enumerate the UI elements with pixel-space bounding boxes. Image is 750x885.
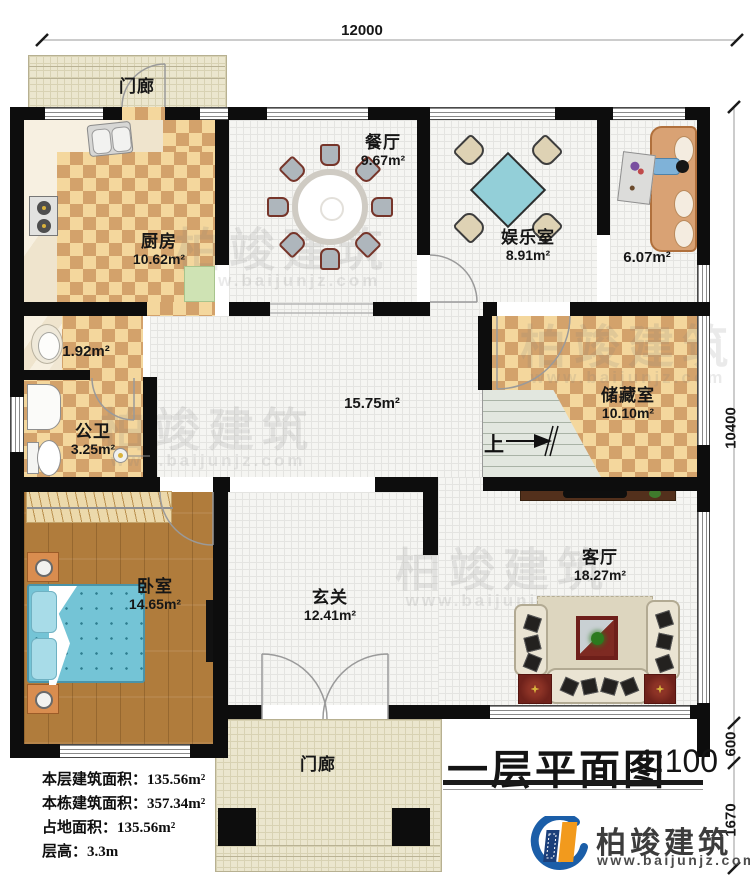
corner-rug — [518, 674, 552, 704]
company-website: www.baijunjz.com — [597, 852, 750, 868]
info-row: 本栋建筑面积：357.34m² — [42, 792, 205, 816]
dining-table-center — [320, 197, 344, 221]
room-area: 18.27m² — [574, 567, 626, 583]
lounge-sofa — [650, 126, 697, 252]
sofa-pillow — [523, 653, 543, 673]
room-area: 3.25m² — [71, 441, 115, 457]
dimension-right-offset: 600 — [723, 731, 740, 756]
room-name: 餐厅 — [361, 134, 405, 152]
room-area: 12.41m² — [304, 607, 356, 623]
plan-title: 一层平面图 — [447, 736, 667, 796]
nightstand — [27, 552, 59, 582]
porch-bottom-step-line — [215, 856, 440, 857]
room-label-bedroom: 卧室 14.65m² — [129, 578, 181, 612]
room-area: 10.10m² — [601, 405, 655, 421]
wall-segment — [228, 705, 262, 719]
wall-segment — [555, 107, 613, 120]
room-label-store-small: 1.92m² — [62, 344, 110, 360]
room-label-storage: 储藏室 10.10m² — [601, 387, 655, 421]
info-row: 层高：3.3m — [42, 840, 205, 864]
logo-building-navy — [543, 830, 559, 862]
wall-segment — [10, 107, 24, 397]
wall-bathroom-east — [143, 377, 157, 478]
room-label-foyer: 玄关 12.41m² — [304, 589, 356, 623]
corner-rug — [644, 674, 676, 704]
wall-storage-west — [478, 316, 492, 390]
logo-building-orange — [558, 822, 577, 862]
wall-segment — [103, 107, 122, 120]
wall-dining-south — [373, 302, 430, 316]
room-area: 14.65m² — [129, 596, 181, 612]
porch-column — [392, 808, 430, 846]
room-label-lounge: 6.07m² — [623, 250, 671, 266]
room-area: 9.67m² — [361, 152, 405, 168]
flowers — [637, 168, 644, 175]
window — [45, 107, 103, 120]
info-label: 层高： — [42, 843, 87, 860]
window — [697, 512, 710, 703]
wall-segment — [388, 705, 490, 719]
nightstand — [27, 684, 59, 714]
dining-chair — [320, 144, 340, 166]
wall-storage-south — [483, 477, 710, 491]
washing-machine — [27, 384, 61, 430]
room-area: 10.62m² — [133, 251, 185, 267]
sofa-pillow — [600, 677, 619, 696]
wall-dining-east — [417, 120, 430, 255]
lounge-table — [617, 151, 656, 205]
bed — [27, 584, 145, 683]
porch-bottom-floor — [215, 719, 442, 872]
wall-segment — [697, 107, 710, 265]
wall-lounge-west — [597, 120, 610, 235]
info-value: 357.34m² — [147, 796, 205, 812]
window — [490, 705, 690, 719]
room-name: 玄关 — [304, 589, 356, 607]
room-label-dining: 餐厅 9.67m² — [361, 134, 405, 168]
sofa-pillow — [655, 610, 674, 629]
person-head — [676, 160, 689, 173]
window — [200, 107, 228, 120]
flowers — [629, 185, 635, 191]
dimension-right-height: 10400 — [723, 407, 740, 449]
kitchen-mat — [184, 266, 215, 302]
window — [613, 107, 685, 120]
room-name: 门廊 — [119, 78, 155, 96]
toilet-bowl — [37, 440, 61, 476]
window — [697, 265, 710, 445]
room-label-porch-top: 门廊 — [119, 78, 155, 96]
store-small-basin — [31, 324, 63, 364]
room-name: 储藏室 — [601, 387, 655, 405]
room-label-kitchen: 厨房 10.62m² — [133, 233, 185, 267]
room-area: 8.91m² — [501, 247, 555, 263]
sofa-right — [646, 600, 680, 680]
logo-buildings — [543, 822, 577, 862]
basin-bowl — [38, 332, 60, 360]
room-name: 厨房 — [133, 233, 185, 251]
wall-kitchen-east — [215, 120, 229, 265]
window — [10, 397, 24, 452]
sofa-pillow — [656, 633, 674, 651]
drain-dot — [118, 453, 123, 458]
dining-chair — [320, 248, 340, 270]
title-underline-thin — [443, 789, 703, 790]
porch-top-step-line — [28, 66, 225, 67]
kitchen-south-opening — [147, 302, 215, 316]
room-label-porch-bottom: 门廊 — [300, 756, 336, 774]
sofa-pillow — [560, 677, 580, 697]
room-label-bathroom: 公卫 3.25m² — [71, 423, 115, 457]
window — [267, 107, 368, 120]
sofa-bottom — [546, 668, 650, 704]
sofa-pillow — [620, 677, 640, 697]
burner-dot — [42, 206, 46, 210]
room-name: 门廊 — [300, 756, 336, 774]
wall-kitchen-south — [10, 302, 147, 316]
room-area: 15.75m² — [344, 396, 400, 412]
wall-bathroom-north — [24, 370, 90, 380]
wall-segment — [10, 744, 60, 758]
room-name: 公卫 — [71, 423, 115, 441]
wall-storage-north — [483, 302, 497, 316]
stairs-up-label: 上 — [484, 428, 504, 457]
wall-dining-south — [229, 302, 270, 316]
wall-segment — [368, 107, 430, 120]
logo-swoosh-buildings — [530, 816, 590, 874]
wardrobe-rod — [27, 507, 173, 509]
pillow-blue — [31, 591, 57, 633]
wall-segment — [165, 107, 200, 120]
info-label: 本栋建筑面积： — [42, 795, 147, 812]
room-label-hall: 15.75m² — [344, 396, 400, 412]
wall-bedroom-east — [213, 477, 228, 758]
info-value: 3.3m — [87, 844, 118, 860]
coffee-table — [576, 616, 618, 660]
kitchen-sink — [86, 121, 133, 157]
sofa-pillow — [655, 654, 674, 673]
wall-segment — [690, 705, 710, 719]
dining-chair — [267, 197, 289, 217]
dining-opening-floor — [270, 302, 373, 316]
info-row: 占地面积：135.56m² — [42, 816, 205, 840]
sofa-left — [514, 604, 548, 676]
info-label: 占地面积： — [42, 819, 117, 836]
porch-column — [218, 808, 256, 846]
table-plant — [591, 632, 604, 645]
room-area: 1.92m² — [62, 344, 110, 360]
room-label-living: 客厅 18.27m² — [574, 549, 626, 583]
room-name: 卧室 — [129, 578, 181, 596]
burner-dot — [42, 224, 46, 228]
dining-table — [292, 169, 368, 245]
wall-foyer-living-stub — [423, 477, 438, 555]
dimension-top-width: 12000 — [341, 22, 383, 39]
info-row: 本层建筑面积：135.56m² — [42, 768, 205, 792]
info-block: 本层建筑面积：135.56m² 本栋建筑面积：357.34m² 占地面积：135… — [42, 768, 205, 864]
room-name: 娱乐室 — [501, 229, 555, 247]
wall-storage-north — [570, 302, 710, 316]
bedside-lamp — [35, 691, 53, 709]
window — [60, 744, 190, 758]
wall-bedroom-north — [10, 477, 160, 492]
info-value: 135.56m² — [147, 772, 205, 788]
sink-basin — [91, 128, 113, 155]
sofa-cushion — [674, 220, 694, 248]
window — [430, 107, 555, 120]
info-value: 135.56m² — [117, 820, 175, 836]
sofa-pillow — [523, 614, 542, 633]
porch-door-threshold — [122, 107, 165, 120]
bedside-lamp — [35, 559, 53, 577]
sofa-pillow — [581, 678, 599, 696]
wardrobe — [26, 491, 172, 523]
sofa-cushion — [674, 190, 694, 218]
room-area: 6.07m² — [623, 250, 671, 266]
sofa-pillow — [523, 634, 541, 652]
info-label: 本层建筑面积： — [42, 771, 147, 788]
sink-basin — [111, 126, 133, 153]
wall-segment — [10, 452, 24, 758]
company-logo-icon — [530, 816, 590, 874]
floor-plan-sheet: 柏竣建筑 www.baijunjz.com 柏竣建筑 www.baijunjz.… — [0, 0, 750, 885]
kitchen-stove — [29, 196, 58, 236]
wall-segment — [228, 107, 267, 120]
room-name: 客厅 — [574, 549, 626, 567]
plan-scale: 1:100 — [638, 743, 718, 780]
dining-chair — [371, 197, 393, 217]
floor-drain — [113, 448, 128, 463]
corridor-north-floor — [430, 302, 483, 316]
pillow-blue — [31, 638, 57, 680]
hall-floor — [150, 316, 482, 477]
title-underline-thick — [443, 780, 703, 785]
room-label-entertainment: 娱乐室 8.91m² — [501, 229, 555, 263]
